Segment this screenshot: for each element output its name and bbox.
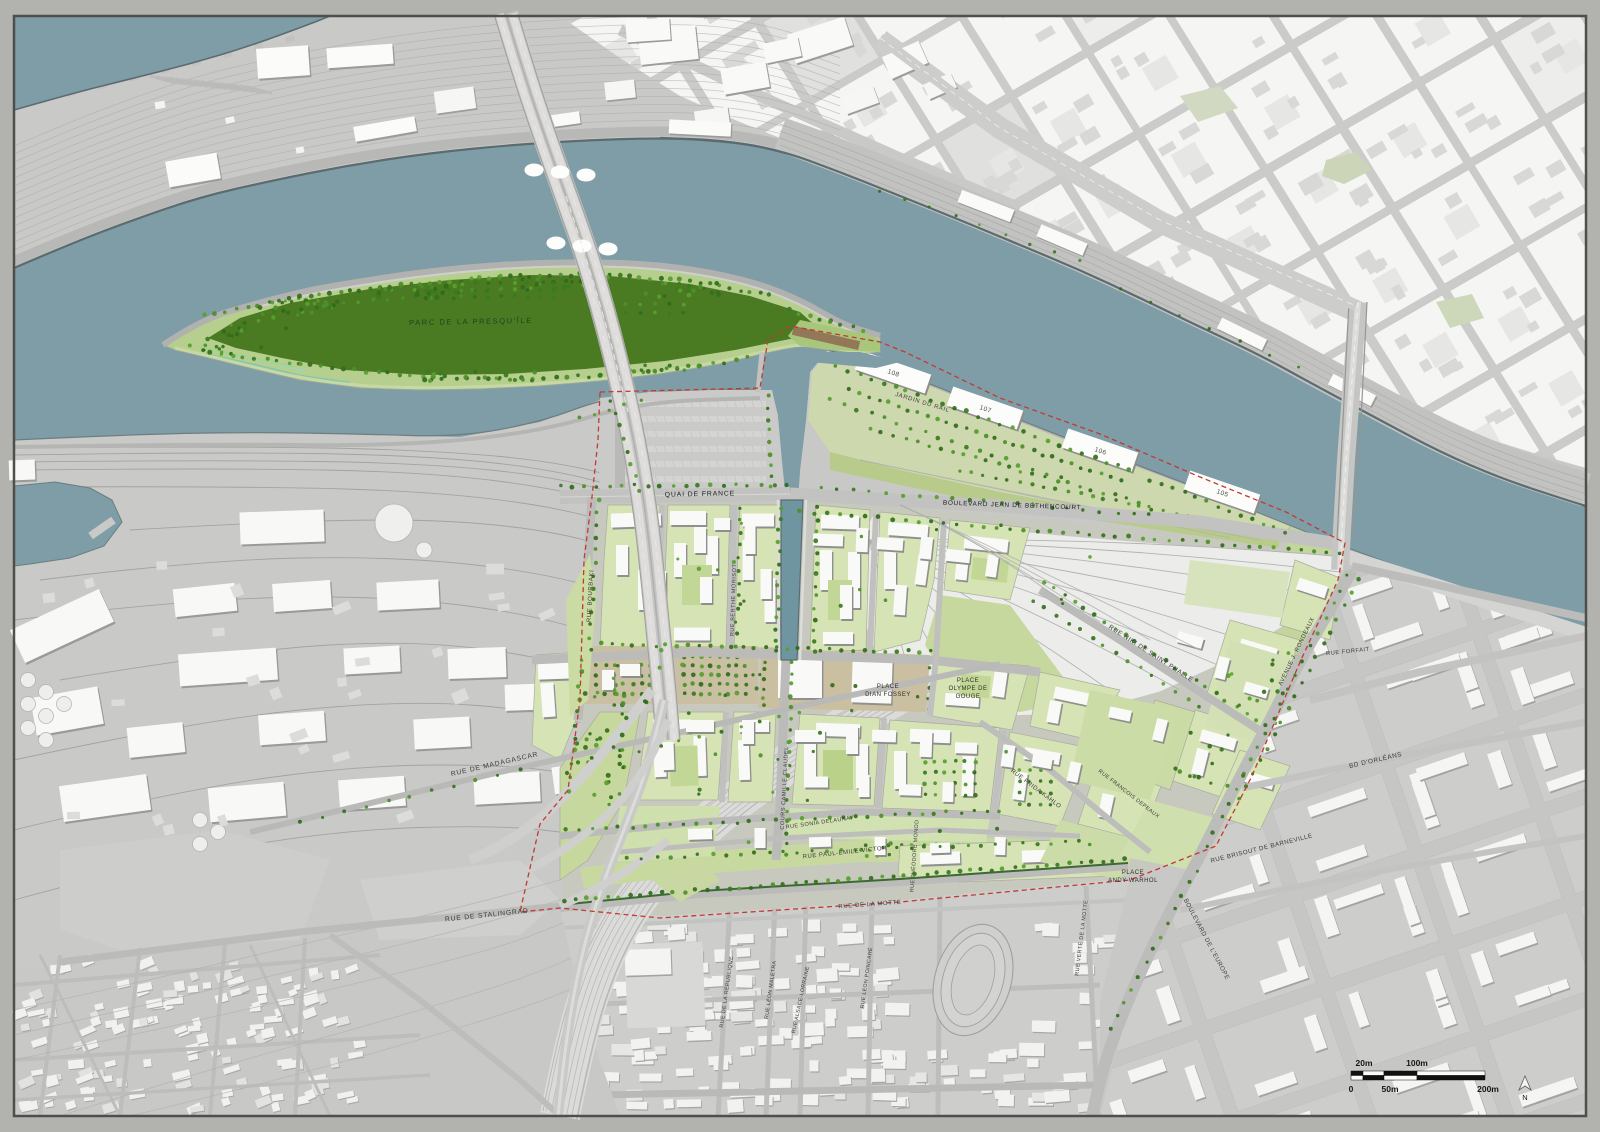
svg-text:PLACE: PLACE [957, 678, 979, 684]
svg-text:20m: 20m [1355, 1058, 1372, 1068]
svg-text:100m: 100m [1406, 1058, 1428, 1068]
svg-text:DIAN FOSSEY: DIAN FOSSEY [865, 692, 911, 698]
svg-text:PLACE: PLACE [877, 684, 899, 690]
svg-text:0: 0 [1349, 1084, 1354, 1094]
svg-text:GOUGE: GOUGE [956, 694, 981, 700]
svg-text:PLACE: PLACE [1122, 870, 1144, 876]
svg-text:N: N [1522, 1093, 1527, 1102]
svg-text:200m: 200m [1477, 1084, 1499, 1094]
svg-text:ANDY WARHOL: ANDY WARHOL [1108, 878, 1158, 884]
svg-text:50m: 50m [1381, 1084, 1398, 1094]
svg-text:OLYMPE DE: OLYMPE DE [948, 686, 987, 692]
svg-text:QUAI DE FRANCE: QUAI DE FRANCE [665, 490, 736, 498]
